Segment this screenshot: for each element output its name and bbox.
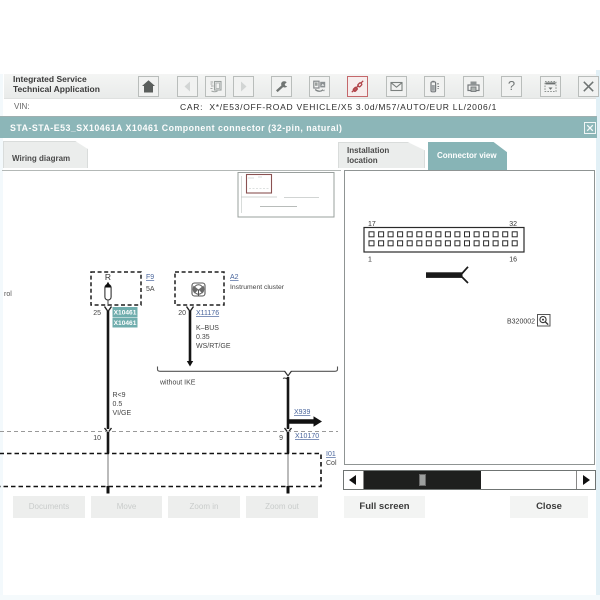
svg-text:F9: F9: [146, 274, 154, 281]
svg-text:9: 9: [279, 435, 283, 442]
svg-text:rol: rol: [4, 291, 12, 298]
svg-text:X11176: X11176: [196, 310, 219, 317]
svg-text:A2: A2: [230, 274, 239, 281]
svg-text:Instrument cluster: Instrument cluster: [230, 284, 285, 291]
svg-text:16: 16: [509, 257, 517, 264]
svg-text:without IKE: without IKE: [159, 380, 196, 387]
svg-text:R: R: [105, 272, 111, 282]
svg-text:X939: X939: [294, 409, 310, 416]
svg-text:0.35: 0.35: [196, 334, 210, 341]
svg-text:Col: Col: [326, 460, 337, 467]
svg-text:1: 1: [368, 257, 372, 264]
svg-text:B320002: B320002: [507, 319, 535, 326]
svg-text:VI/GE: VI/GE: [113, 410, 132, 417]
svg-text:R<9: R<9: [113, 392, 126, 399]
svg-text:25: 25: [93, 310, 101, 317]
svg-text:20: 20: [178, 310, 186, 317]
svg-text:5A: 5A: [146, 286, 155, 293]
svg-text:WS/RT/GE: WS/RT/GE: [196, 343, 231, 350]
svg-text:X10461: X10461: [114, 310, 137, 317]
svg-text:X10461: X10461: [114, 320, 137, 327]
svg-text:0.5: 0.5: [113, 401, 123, 408]
svg-text:10: 10: [93, 435, 101, 442]
svg-text:X10170: X10170: [295, 433, 319, 440]
svg-text:K–BUS: K–BUS: [196, 325, 219, 332]
svg-text:I01: I01: [326, 451, 336, 458]
